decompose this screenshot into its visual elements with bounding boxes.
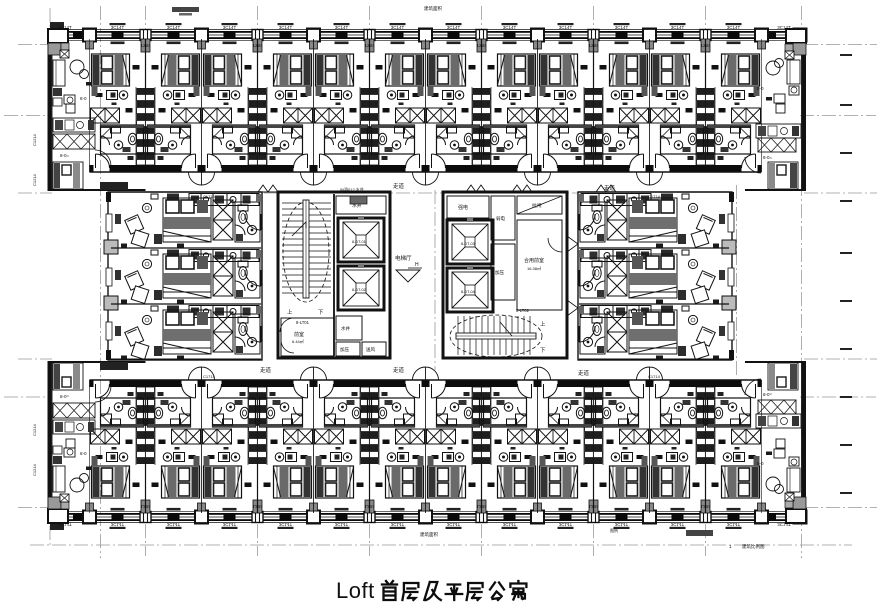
svg-text:16.38㎡: 16.38㎡ (527, 265, 541, 271)
svg-text:下: 下 (318, 309, 324, 316)
svg-text:H: H (415, 262, 419, 268)
svg-text:加压: 加压 (495, 269, 504, 276)
svg-text:走道: 走道 (578, 369, 590, 377)
svg-text:C1214: C1214 (32, 173, 37, 186)
svg-text:8-DT-01: 8-DT-01 (352, 240, 366, 244)
svg-text:水井: 水井 (341, 325, 350, 332)
svg-text:8-LT02: 8-LT02 (516, 308, 530, 313)
svg-text:8-0=: 8-0= (60, 153, 70, 158)
svg-text:走道: 走道 (260, 366, 272, 374)
svg-text:送风: 送风 (366, 346, 375, 353)
svg-text:建筑面积: 建筑面积 (420, 531, 438, 538)
svg-text:走道: 走道 (393, 366, 405, 374)
svg-text:走道: 走道 (604, 184, 616, 192)
svg-text:拉闸: 拉闸 (532, 202, 542, 209)
svg-text:8-0: 8-0 (757, 86, 764, 91)
svg-text:C1214: C1214 (32, 463, 37, 476)
svg-text:电梯厅: 电梯厅 (395, 254, 412, 262)
svg-text:8-DT-02: 8-DT-02 (352, 288, 366, 292)
svg-text:8-0: 8-0 (80, 96, 87, 101)
svg-text:强电: 强电 (458, 204, 468, 211)
svg-text:建筑比例图: 建筑比例图 (742, 543, 765, 550)
svg-text:C1714: C1714 (648, 194, 661, 199)
svg-text:建筑面积: 建筑面积 (424, 5, 442, 12)
svg-text:下: 下 (540, 347, 546, 354)
svg-text:前室: 前室 (294, 331, 304, 338)
svg-text:IN消012 水井: IN消012 水井 (340, 186, 364, 192)
svg-text:上: 上 (540, 320, 546, 328)
svg-text:8-DT-04: 8-DT-04 (461, 290, 475, 294)
svg-text:Loft: Loft (336, 578, 375, 603)
svg-text:走道: 走道 (393, 182, 405, 190)
svg-text:8-0=: 8-0= (763, 155, 773, 160)
svg-text:C1214: C1214 (32, 423, 37, 436)
svg-text:C1714: C1714 (203, 194, 216, 199)
svg-text:图例: 图例 (610, 527, 618, 533)
svg-text:8-LT01: 8-LT01 (296, 320, 310, 325)
svg-text:弱电: 弱电 (496, 215, 505, 222)
svg-text:加压: 加压 (340, 346, 349, 353)
svg-text:上: 上 (287, 308, 293, 316)
svg-text:6.44㎡: 6.44㎡ (292, 338, 304, 344)
svg-text:合用前室: 合用前室 (524, 257, 544, 264)
svg-text:C1214: C1214 (32, 133, 37, 146)
svg-text:8-DT-03: 8-DT-03 (461, 242, 475, 246)
